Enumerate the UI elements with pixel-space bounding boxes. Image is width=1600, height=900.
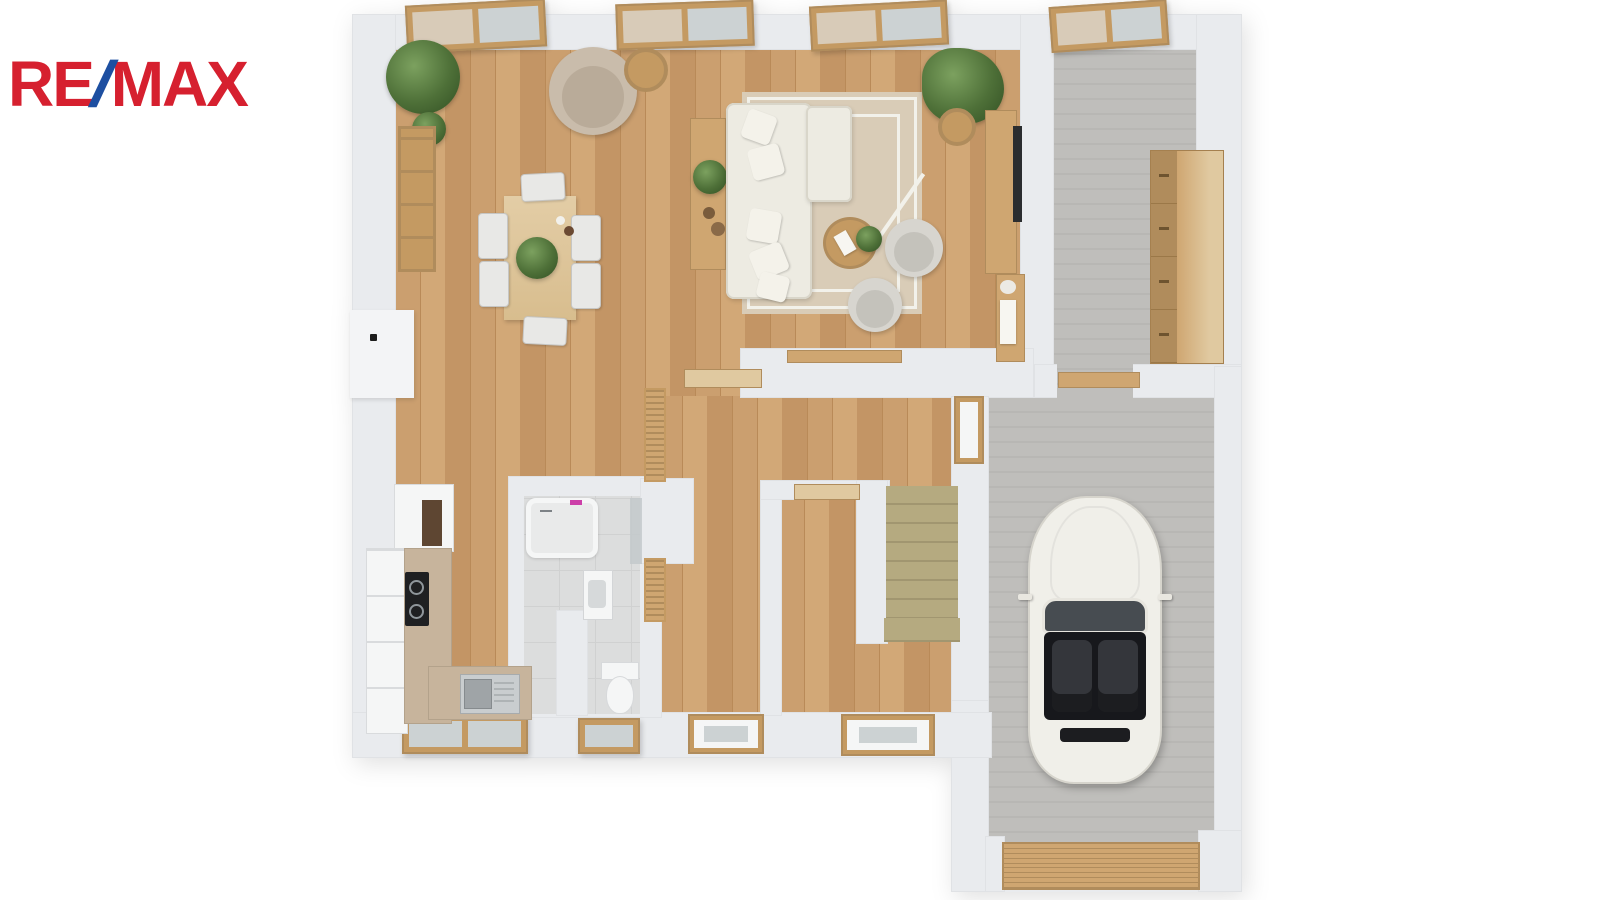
wc-partition-wall xyxy=(556,610,588,716)
shower-glass xyxy=(630,498,642,564)
living-window-2 xyxy=(615,0,755,50)
step xyxy=(886,600,958,619)
window-pane xyxy=(687,7,747,41)
dining-chair xyxy=(571,215,601,261)
door-leaf xyxy=(694,720,758,748)
car xyxy=(1028,496,1162,784)
table-bowl xyxy=(564,226,574,236)
garage-door xyxy=(1002,842,1200,890)
wardrobe-drawers xyxy=(1151,151,1177,363)
toilet-bowl xyxy=(606,676,634,714)
window-pane xyxy=(1111,6,1162,41)
shelf-books xyxy=(1000,300,1016,344)
window-pane xyxy=(1056,10,1107,45)
kitchen-tall-cabinets xyxy=(366,548,408,734)
garage-right-wall xyxy=(1214,366,1242,892)
living-corridor-threshold xyxy=(684,369,762,388)
staircase-bottom-step xyxy=(884,618,960,642)
hallway-back-door xyxy=(688,714,764,754)
bath-corridor-wall xyxy=(640,478,694,564)
car-windshield xyxy=(1042,598,1148,634)
door-glass xyxy=(704,726,749,741)
bath-accent xyxy=(570,500,582,505)
window-pane xyxy=(816,10,877,44)
door-glass xyxy=(859,727,916,744)
floorplan-screenshot: RE / MAX xyxy=(0,0,1600,900)
drawer xyxy=(1151,204,1177,257)
vestibule-threshold xyxy=(794,484,860,500)
drawer xyxy=(1151,151,1177,204)
slat xyxy=(1004,883,1198,888)
hall-garage-door-leaf xyxy=(1058,372,1140,388)
window-pane xyxy=(622,9,682,43)
front-door xyxy=(841,714,935,756)
window-pane xyxy=(468,721,521,747)
hall-wardrobe xyxy=(1150,150,1224,364)
wc-window xyxy=(578,718,640,754)
shell-ornament xyxy=(1000,280,1016,294)
garage-side-door-leaf xyxy=(960,402,978,458)
floor-plan xyxy=(0,0,1600,900)
dining-chair xyxy=(479,261,509,307)
coffee-table-plant xyxy=(856,226,882,252)
step xyxy=(886,505,958,524)
living-hall-divider-wall xyxy=(1020,14,1054,398)
dining-chair xyxy=(478,213,508,259)
step xyxy=(886,543,958,562)
armchair-2 xyxy=(848,278,902,332)
hall-window xyxy=(1049,0,1170,53)
door-leaf xyxy=(847,720,929,750)
armchair-1 xyxy=(885,219,943,277)
window-pane xyxy=(409,721,462,747)
car-seat-right xyxy=(1098,640,1138,712)
console-tray xyxy=(711,222,725,236)
drawer xyxy=(1151,257,1177,310)
car-cabin xyxy=(1044,632,1146,720)
ladder-shelf xyxy=(398,126,436,272)
car-mirror-left xyxy=(1018,594,1032,600)
step xyxy=(886,581,958,600)
fireplace-chimney xyxy=(350,310,414,398)
step xyxy=(886,562,958,581)
vestibule-left-wall xyxy=(760,480,782,716)
dining-chair xyxy=(571,263,601,309)
stove-pipe-mark xyxy=(370,334,377,341)
dining-chair xyxy=(522,316,567,346)
wicker-side-table xyxy=(624,48,668,92)
step xyxy=(886,524,958,543)
garage-side-door-frame xyxy=(954,396,984,464)
armchair-cushion xyxy=(894,232,935,273)
window-pane xyxy=(478,6,540,43)
bathtub-faucet xyxy=(540,510,552,512)
closet-louver-door-1 xyxy=(644,388,666,482)
car-rear-grille xyxy=(1060,728,1130,742)
washbasin-bowl xyxy=(588,580,606,608)
table-cup xyxy=(556,216,565,225)
car-mirror-right xyxy=(1158,594,1172,600)
corridor-floor xyxy=(658,396,953,488)
staircase xyxy=(886,486,958,638)
window-pane xyxy=(881,7,942,41)
sink-basin xyxy=(464,679,492,709)
corner-plant xyxy=(386,40,460,114)
kitchen-fridge-panel xyxy=(422,500,442,546)
car-seat-left xyxy=(1052,640,1092,712)
drawer xyxy=(1151,310,1177,363)
pouf-cushion xyxy=(562,66,624,128)
closet-louver-door-2 xyxy=(644,558,666,622)
table-centerpiece-plant xyxy=(516,237,558,279)
console-tray xyxy=(703,207,715,219)
dining-chair xyxy=(520,172,565,202)
window-pane xyxy=(585,725,633,747)
step xyxy=(886,486,958,505)
wall-tv xyxy=(1013,126,1022,222)
cooktop-burner xyxy=(409,604,424,619)
living-window-3 xyxy=(809,0,949,52)
palm-basket xyxy=(938,108,976,146)
sofa-pillow xyxy=(745,207,782,244)
armchair-cushion xyxy=(856,290,894,328)
wardrobe-front xyxy=(1177,151,1223,363)
sofa-chaise xyxy=(806,106,852,202)
bathtub xyxy=(526,498,598,558)
sofa-console-table xyxy=(690,118,726,270)
living-window-sill xyxy=(787,350,902,363)
lounge-pouf-chair xyxy=(549,47,637,135)
garage-door-post-right xyxy=(1198,830,1242,892)
cooktop-burner xyxy=(409,580,424,595)
sink-drainboard xyxy=(494,680,514,706)
console-plant xyxy=(693,160,727,194)
car-hood xyxy=(1050,506,1140,602)
